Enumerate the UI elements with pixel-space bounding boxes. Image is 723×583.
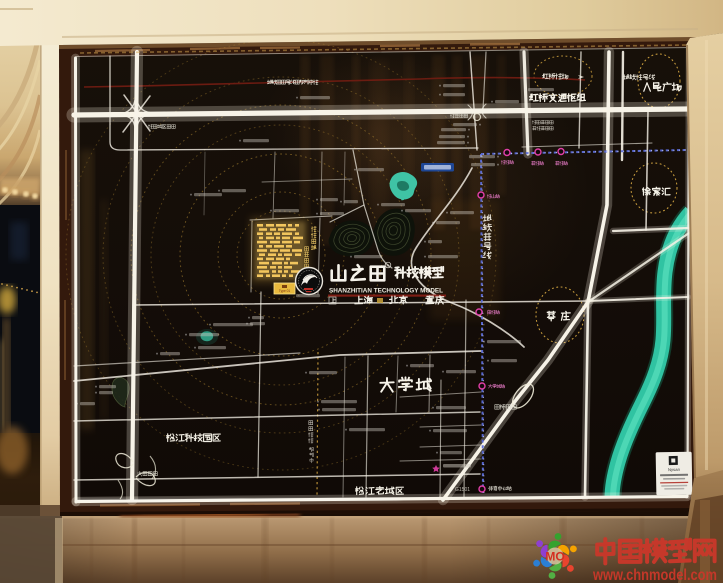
svg-text:MO: MO [545,550,564,564]
svg-text:SHANZHITIAN TECHNOLOGY MODEL: SHANZHITIAN TECHNOLOGY MODEL [329,288,443,295]
svg-text:Nysan: Nysan [668,467,681,472]
svg-text:G1501: G1501 [455,487,470,493]
svg-text:www.chnmodel.com: www.chnmodel.com [592,567,717,583]
svg-text:Type 01: Type 01 [279,289,291,293]
svg-text:R: R [387,263,390,268]
